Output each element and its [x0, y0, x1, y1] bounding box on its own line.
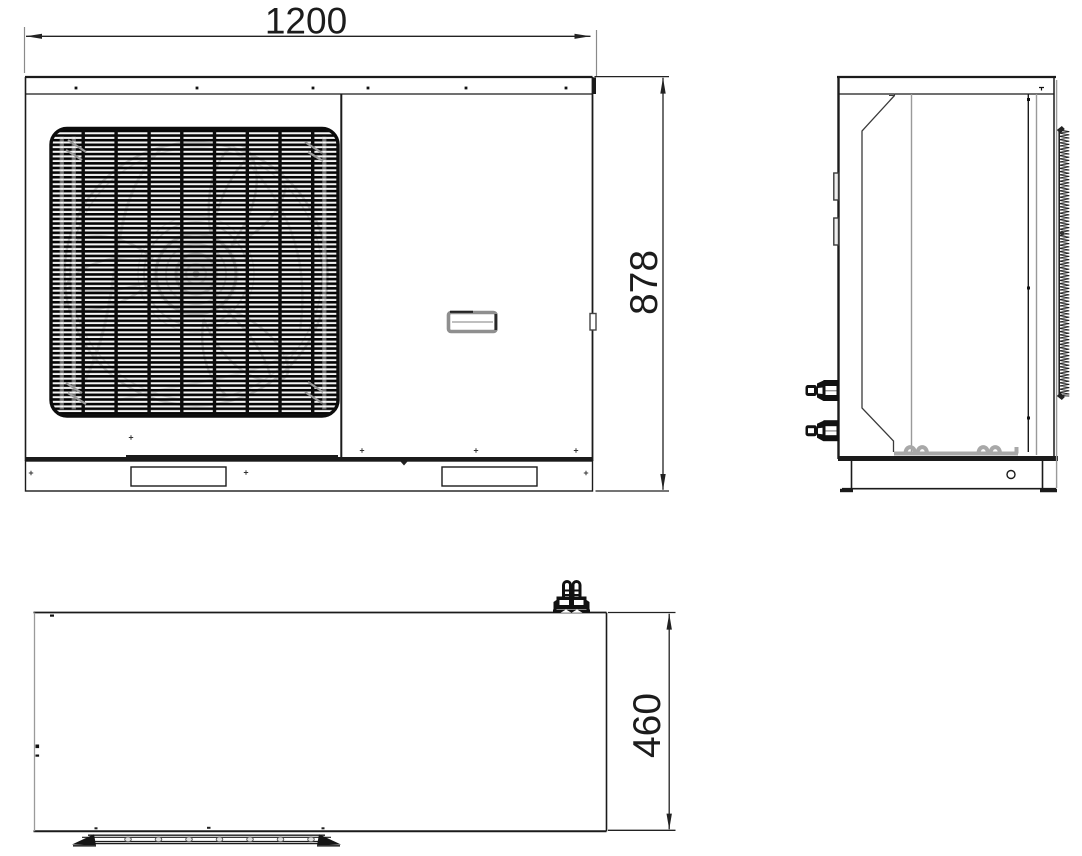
svg-text:878: 878 [623, 250, 666, 315]
svg-text:460: 460 [626, 693, 669, 758]
svg-text:1200: 1200 [265, 1, 347, 42]
